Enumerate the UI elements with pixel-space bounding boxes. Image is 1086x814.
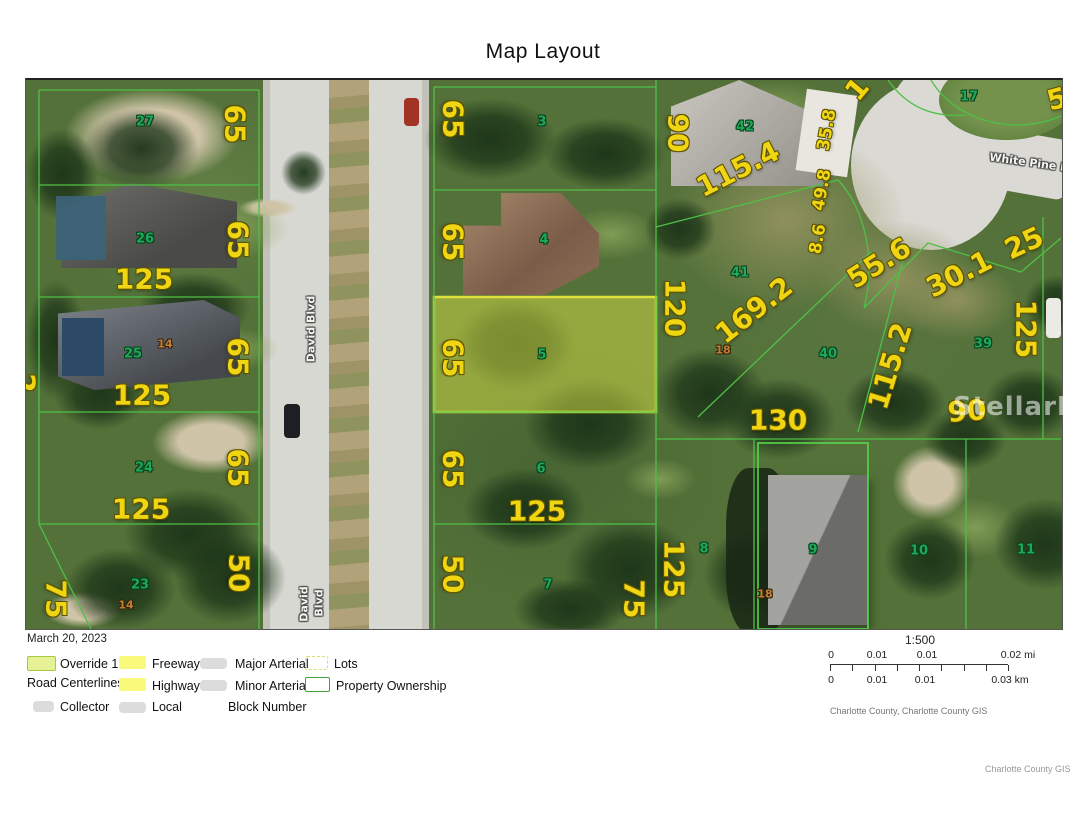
scale-tick-label: 0 (828, 649, 834, 661)
highway-swatch (119, 678, 146, 691)
collector-swatch (33, 701, 54, 712)
scale-bar (830, 664, 1008, 672)
highway-label: Highway (152, 679, 200, 693)
block-number-label: Block Number (228, 700, 307, 714)
scale-tick-label: 0.01 (867, 674, 887, 686)
freeway-label: Freeway (152, 657, 200, 671)
lots-swatch (305, 656, 328, 670)
minor-arterial-label: Minor Arterial (235, 679, 309, 693)
lots-label: Lots (334, 657, 358, 671)
scale-tick-label: 0.02 mi (1001, 649, 1035, 661)
scale-ratio: 1:500 (830, 633, 1010, 647)
scale-tick-label: 0.01 (867, 649, 887, 661)
collector-label: Collector (60, 700, 109, 714)
major-arterial-label: Major Arterial (235, 657, 309, 671)
minor-arterial-swatch (200, 680, 227, 691)
freeway-swatch (119, 656, 146, 669)
scale-bar-tick (897, 665, 898, 671)
scale-tick-label: 0 (828, 674, 834, 686)
scale-bar-tick (1008, 665, 1009, 671)
property-ownership-label: Property Ownership (336, 679, 446, 693)
property-boundary-lot-9 (758, 443, 868, 629)
scale-bar-tick (852, 665, 853, 671)
map-canvas[interactable]: 6565656550125125125752656565655012575125… (25, 78, 1063, 630)
scale-tick-label: 0.01 (915, 674, 935, 686)
scale-tick-label: 0.03 km (991, 674, 1028, 686)
scale-bar-tick (919, 665, 920, 671)
scale-bar-tick (941, 665, 942, 671)
road-centerlines-label: Road Centerlines (27, 676, 124, 690)
scale-bar-tick (830, 665, 831, 671)
override1-swatch (27, 656, 56, 671)
local-swatch (119, 702, 146, 713)
scale-bar-tick (964, 665, 965, 671)
scale-bar-tick (986, 665, 987, 671)
attribution: Charlotte County GIS (985, 764, 1071, 774)
local-label: Local (152, 700, 182, 714)
page-title: Map Layout (0, 40, 1086, 64)
map-date: March 20, 2023 (27, 633, 107, 645)
override1-label: Override 1 (60, 657, 118, 671)
scale-tick-label: 0.01 (917, 649, 937, 661)
override-highlight-lot-5 (434, 297, 656, 412)
parcel-lines-layer (26, 80, 1062, 629)
major-arterial-swatch (200, 658, 227, 669)
property-ownership-swatch (305, 677, 330, 692)
map-source-credit: Charlotte County, Charlotte County GIS (830, 706, 987, 716)
scale-bar-tick (875, 665, 876, 671)
